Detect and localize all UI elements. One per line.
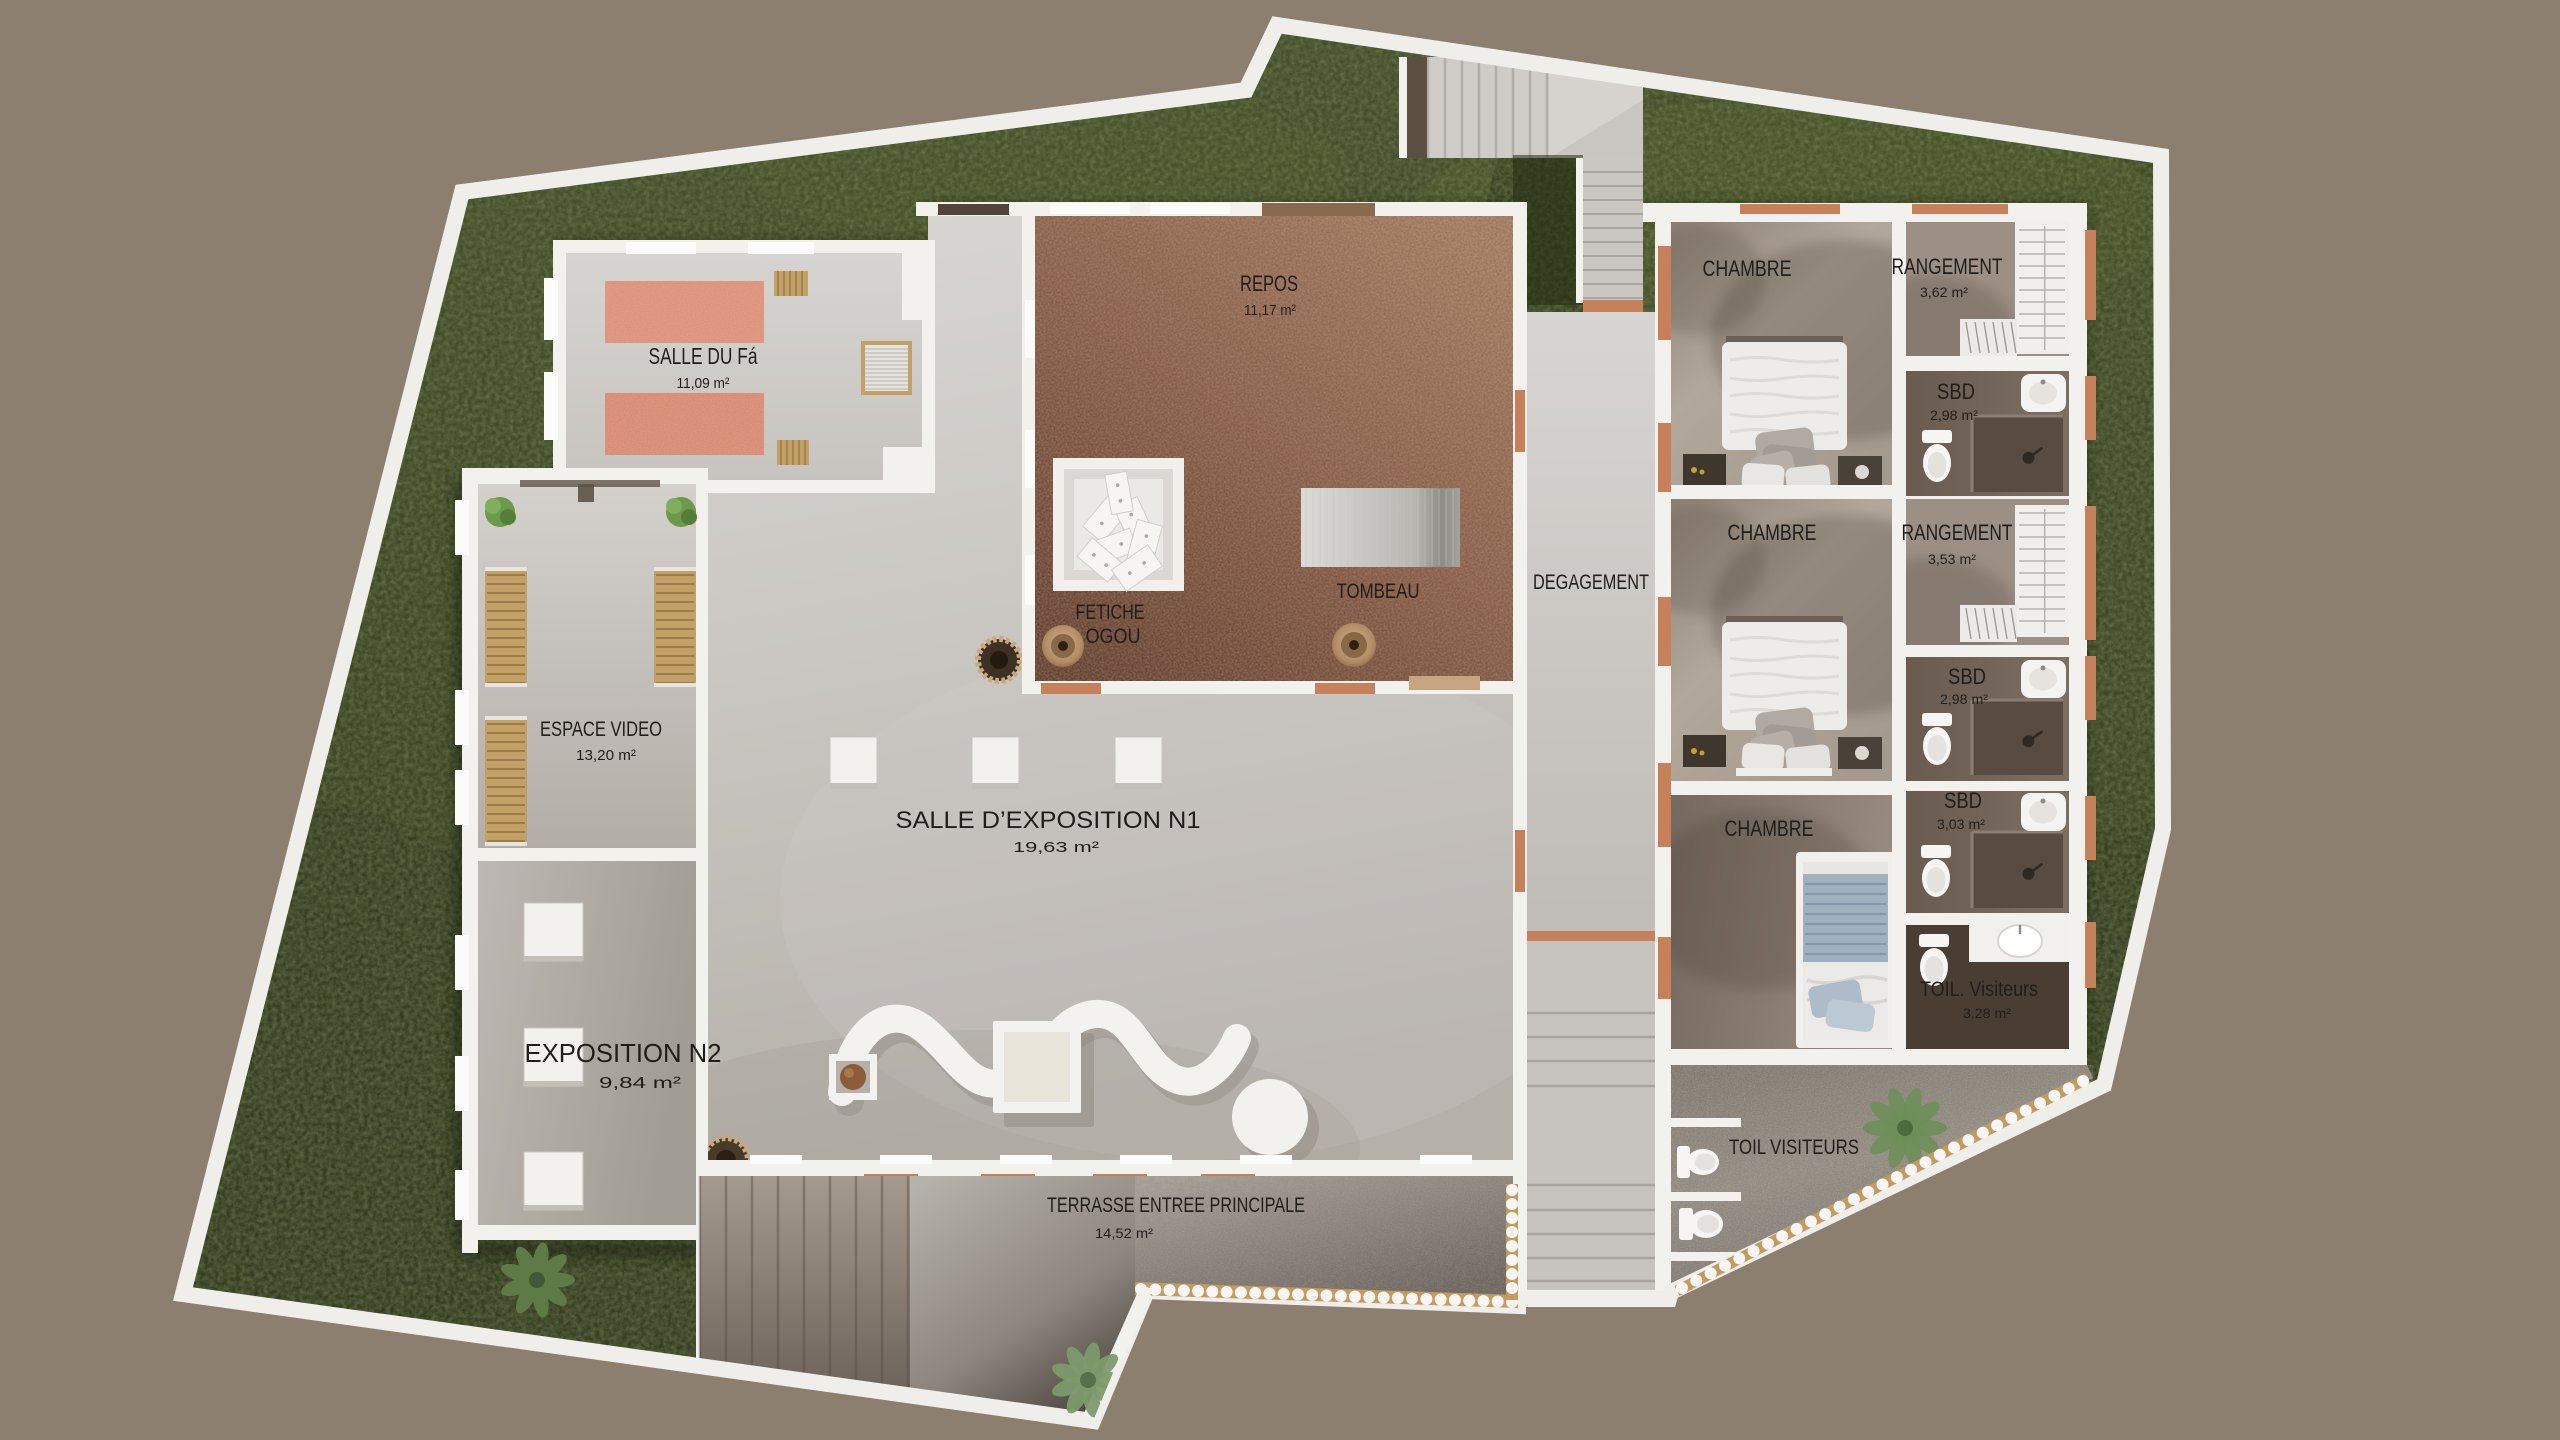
svg-text:TERRASSE ENTREE PRINCIPALE: TERRASSE ENTREE PRINCIPALE — [1047, 1194, 1305, 1217]
svg-text:19,63 m²: 19,63 m² — [1013, 839, 1099, 856]
svg-text:11,09 m²: 11,09 m² — [677, 375, 730, 392]
svg-text:3,62 m²: 3,62 m² — [1920, 284, 1968, 300]
svg-text:2,98 m²: 2,98 m² — [1940, 691, 1988, 707]
svg-text:DEGAGEMENT: DEGAGEMENT — [1533, 571, 1649, 594]
svg-text:CHAMBRE: CHAMBRE — [1725, 816, 1814, 841]
svg-text:SBD: SBD — [1944, 788, 1982, 813]
svg-text:11,17 m²: 11,17 m² — [1244, 302, 1296, 319]
svg-text:9,84 m²: 9,84 m² — [599, 1075, 682, 1092]
svg-text:TOIL. Visiteurs: TOIL. Visiteurs — [1920, 978, 2038, 1001]
svg-text:3,53 m²: 3,53 m² — [1928, 551, 1976, 567]
svg-text:OGOU: OGOU — [1086, 625, 1141, 648]
svg-text:SALLE DU Fá: SALLE DU Fá — [649, 343, 758, 369]
svg-text:FETICHE: FETICHE — [1076, 601, 1145, 624]
svg-text:2,98 m²: 2,98 m² — [1930, 407, 1978, 423]
svg-text:TOIL VISITEURS: TOIL VISITEURS — [1729, 1136, 1859, 1159]
svg-text:EXPOSITION N2: EXPOSITION N2 — [525, 1038, 722, 1068]
svg-text:REPOS: REPOS — [1240, 271, 1298, 296]
svg-text:RANGEMENT: RANGEMENT — [1892, 254, 2003, 279]
svg-text:CHAMBRE: CHAMBRE — [1703, 256, 1792, 281]
svg-text:3,28 m²: 3,28 m² — [1963, 1005, 2011, 1021]
svg-text:ESPACE VIDEO: ESPACE VIDEO — [540, 718, 662, 741]
svg-text:13,20 m²: 13,20 m² — [576, 747, 636, 764]
svg-text:3,03 m²: 3,03 m² — [1937, 816, 1985, 832]
svg-text:CHAMBRE: CHAMBRE — [1728, 520, 1817, 545]
svg-text:SBD: SBD — [1948, 664, 1986, 689]
svg-text:14,52 m²: 14,52 m² — [1095, 1225, 1153, 1241]
svg-text:RANGEMENT: RANGEMENT — [1902, 520, 2013, 545]
svg-text:SALLE D’EXPOSITION N1: SALLE D’EXPOSITION N1 — [896, 807, 1201, 834]
svg-text:TOMBEAU: TOMBEAU — [1337, 580, 1420, 603]
svg-text:SBD: SBD — [1937, 379, 1975, 404]
